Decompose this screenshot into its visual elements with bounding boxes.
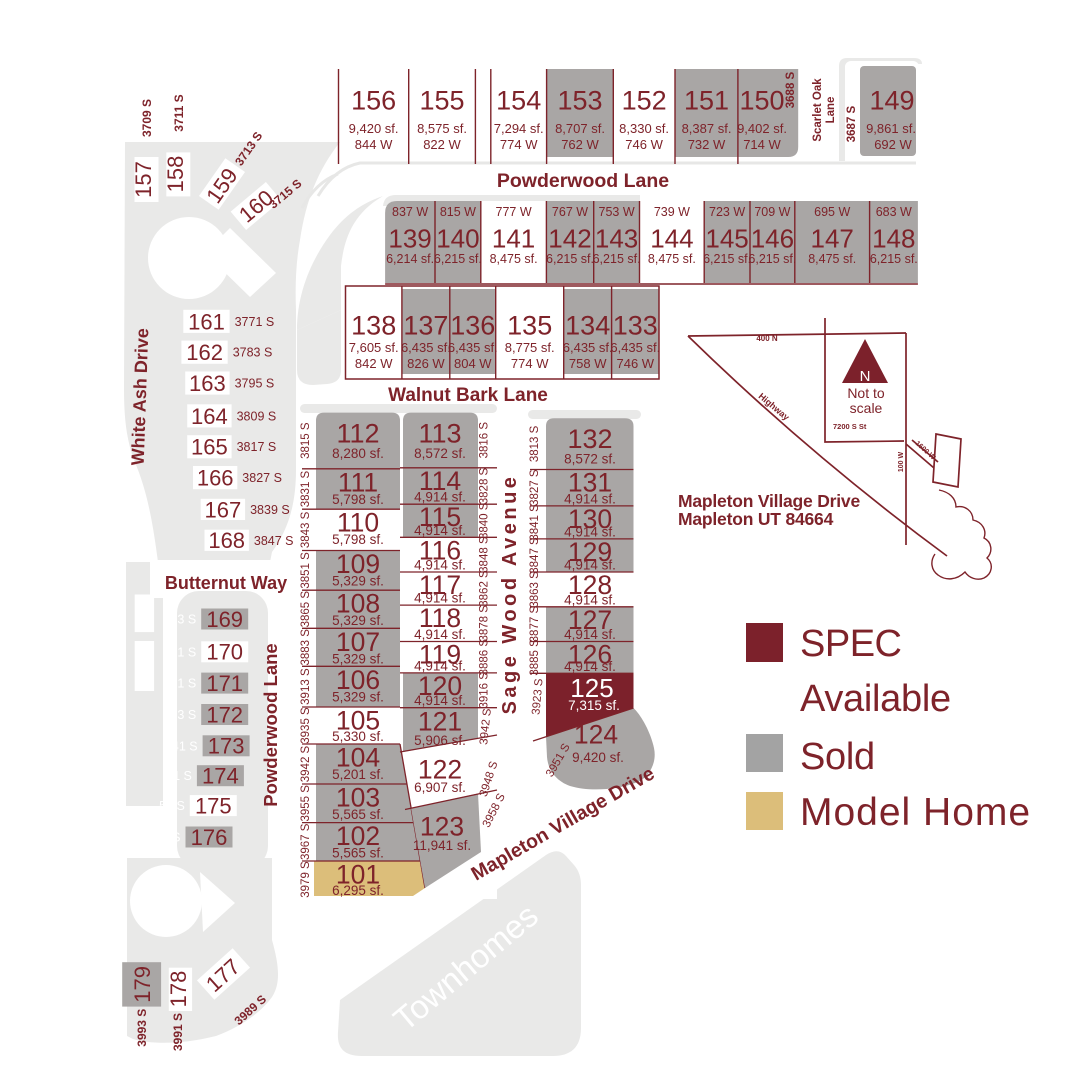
svg-text:3841 S: 3841 S <box>529 504 541 541</box>
svg-text:5,565 sf.: 5,565 sf. <box>332 846 384 861</box>
svg-text:3916 S: 3916 S <box>479 672 491 709</box>
svg-text:SPEC: SPEC <box>800 623 901 665</box>
svg-text:136: 136 <box>450 311 495 341</box>
svg-text:151: 151 <box>684 86 729 116</box>
svg-text:692 W: 692 W <box>874 137 912 152</box>
svg-text:N: N <box>860 368 871 385</box>
svg-text:8,475 sf.: 8,475 sf. <box>490 252 538 266</box>
svg-text:3878 S: 3878 S <box>479 605 491 642</box>
svg-text:746 W: 746 W <box>625 137 663 152</box>
svg-text:139: 139 <box>388 223 431 253</box>
svg-text:11,941 sf.: 11,941 sf. <box>413 838 471 853</box>
svg-text:3795 S: 3795 S <box>235 377 275 391</box>
svg-text:5,798 sf.: 5,798 sf. <box>332 532 384 547</box>
svg-text:141: 141 <box>492 223 535 253</box>
svg-text:176: 176 <box>191 825 228 850</box>
svg-text:3839 S: 3839 S <box>250 503 290 517</box>
svg-text:746 W: 746 W <box>617 356 655 371</box>
svg-text:6,215 sf.: 6,215 sf. <box>593 252 641 266</box>
svg-text:815 W: 815 W <box>440 205 476 219</box>
svg-text:6,215 sf.: 6,215 sf. <box>434 252 482 266</box>
svg-text:5,565 sf.: 5,565 sf. <box>332 807 384 822</box>
svg-text:170: 170 <box>206 640 243 665</box>
svg-text:8,475 sf.: 8,475 sf. <box>648 252 696 266</box>
svg-text:7,294 sf.: 7,294 sf. <box>494 121 544 136</box>
svg-text:6,215 sf.: 6,215 sf. <box>546 252 594 266</box>
svg-text:41 S: 41 S <box>172 739 198 753</box>
svg-text:3843 S: 3843 S <box>300 511 312 548</box>
svg-text:1 S: 1 S <box>177 645 196 659</box>
svg-text:8,330 sf.: 8,330 sf. <box>619 121 669 136</box>
svg-text:3828 S: 3828 S <box>479 467 491 504</box>
svg-text:3813 S: 3813 S <box>529 425 541 462</box>
svg-text:1600 W: 1600 W <box>914 440 937 462</box>
svg-text:3993 S: 3993 S <box>135 1009 149 1047</box>
svg-text:155: 155 <box>419 86 464 116</box>
svg-text:162: 162 <box>186 340 223 365</box>
svg-text:51 S: 51 S <box>166 769 192 783</box>
svg-text:Walnut Bark Lane: Walnut Bark Lane <box>388 385 548 406</box>
svg-text:7,315 sf.: 7,315 sf. <box>568 698 620 713</box>
svg-text:3815 S: 3815 S <box>300 422 312 459</box>
svg-text:3863 S: 3863 S <box>529 571 541 608</box>
svg-text:173: 173 <box>208 734 245 759</box>
svg-text:9,420 sf.: 9,420 sf. <box>349 121 399 136</box>
svg-text:Model Home: Model Home <box>800 791 1031 834</box>
svg-text:148: 148 <box>872 223 915 253</box>
svg-text:Mapleton UT 84664: Mapleton UT 84664 <box>678 509 834 529</box>
svg-text:5,329 sf.: 5,329 sf. <box>332 689 384 704</box>
svg-text:157: 157 <box>131 161 156 198</box>
svg-text:3688 S: 3688 S <box>785 71 797 108</box>
svg-text:3913 S: 3913 S <box>300 668 312 705</box>
svg-text:152: 152 <box>622 86 667 116</box>
svg-text:174: 174 <box>202 764 239 789</box>
svg-text:145: 145 <box>705 223 748 253</box>
svg-text:153: 153 <box>557 86 602 116</box>
svg-text:732 W: 732 W <box>688 137 726 152</box>
svg-text:8,475 sf.: 8,475 sf. <box>808 252 856 266</box>
svg-text:3840 S: 3840 S <box>479 502 491 539</box>
svg-text:6,907 sf.: 6,907 sf. <box>414 780 466 795</box>
svg-text:774 W: 774 W <box>500 137 538 152</box>
svg-text:4,914 sf.: 4,914 sf. <box>564 659 616 674</box>
svg-text:150: 150 <box>739 86 784 116</box>
svg-text:3862 S: 3862 S <box>479 570 491 607</box>
svg-text:167: 167 <box>205 497 242 522</box>
svg-text:822 W: 822 W <box>423 137 461 152</box>
svg-text:8,280 sf.: 8,280 sf. <box>332 446 384 461</box>
svg-text:147: 147 <box>811 223 854 253</box>
svg-text:6,215 sf.: 6,215 sf. <box>870 252 918 266</box>
svg-text:3967 S: 3967 S <box>300 823 312 860</box>
svg-text:3991 S: 3991 S <box>171 1013 185 1051</box>
svg-text:9,402 sf.: 9,402 sf. <box>737 121 787 136</box>
svg-text:762 W: 762 W <box>561 137 599 152</box>
svg-text:73 S: 73 S <box>170 613 196 627</box>
svg-text:3885 S: 3885 S <box>529 639 541 676</box>
svg-text:Available: Available <box>800 678 951 720</box>
svg-text:Powderwood Lane: Powderwood Lane <box>497 170 669 192</box>
svg-text:1 S: 1 S <box>177 677 196 691</box>
svg-text:8,775 sf.: 8,775 sf. <box>505 340 555 355</box>
svg-text:683 W: 683 W <box>876 205 912 219</box>
svg-text:3687 S: 3687 S <box>846 105 858 142</box>
svg-text:3877 S: 3877 S <box>529 606 541 643</box>
svg-text:6,435 sf.: 6,435 sf. <box>610 340 660 355</box>
svg-text:140: 140 <box>436 223 479 253</box>
svg-text:3827 S: 3827 S <box>529 469 541 506</box>
svg-text:753 W: 753 W <box>599 205 635 219</box>
svg-text:121: 121 <box>418 707 462 737</box>
svg-text:Highway: Highway <box>757 391 792 422</box>
svg-text:Sage Wood Avenue: Sage Wood Avenue <box>499 474 521 715</box>
svg-text:165: 165 <box>191 435 228 460</box>
svg-text:124: 124 <box>574 720 618 750</box>
svg-text:3771 S: 3771 S <box>235 315 275 329</box>
svg-text:132: 132 <box>567 424 612 454</box>
svg-text:23 S: 23 S <box>170 708 196 722</box>
svg-text:709 W: 709 W <box>754 205 790 219</box>
svg-text:3827 S: 3827 S <box>242 471 282 485</box>
svg-text:3851 S: 3851 S <box>300 552 312 589</box>
svg-text:5,906 sf.: 5,906 sf. <box>414 733 466 748</box>
svg-text:144: 144 <box>650 223 693 253</box>
svg-text:112: 112 <box>336 418 379 448</box>
svg-text:156: 156 <box>351 86 396 116</box>
svg-text:134: 134 <box>565 311 610 341</box>
svg-text:3886 S: 3886 S <box>479 639 491 676</box>
svg-text:3711 S: 3711 S <box>172 94 186 131</box>
svg-text:6,214 sf.: 6,214 sf. <box>386 252 434 266</box>
svg-text:5,201 sf.: 5,201 sf. <box>332 767 384 782</box>
svg-text:6,435 sf.: 6,435 sf. <box>448 340 498 355</box>
svg-text:3783 S: 3783 S <box>233 346 273 360</box>
svg-text:3883 S: 3883 S <box>300 629 312 666</box>
svg-text:179: 179 <box>130 966 155 1003</box>
svg-text:142: 142 <box>548 223 591 253</box>
svg-text:8,572 sf.: 8,572 sf. <box>414 446 466 461</box>
svg-text:123: 123 <box>420 812 464 842</box>
svg-text:837 W: 837 W <box>392 205 428 219</box>
svg-text:3955 S: 3955 S <box>300 785 312 822</box>
svg-text:Powderwood Lane: Powderwood Lane <box>260 643 281 806</box>
svg-text:Scarlet Oak: Scarlet Oak <box>812 78 824 142</box>
svg-text:166: 166 <box>197 466 234 491</box>
svg-text:135: 135 <box>507 311 552 341</box>
svg-text:826 W: 826 W <box>407 356 445 371</box>
svg-text:804 W: 804 W <box>454 356 492 371</box>
svg-text:137: 137 <box>403 311 448 341</box>
svg-text:57 S: 57 S <box>159 799 185 813</box>
svg-text:154: 154 <box>496 86 541 116</box>
svg-text:168: 168 <box>208 528 245 553</box>
svg-text:6,435 sf.: 6,435 sf. <box>563 340 613 355</box>
svg-text:161: 161 <box>188 309 225 334</box>
svg-text:695 W: 695 W <box>814 205 850 219</box>
svg-text:6,295 sf.: 6,295 sf. <box>332 883 384 898</box>
svg-text:8,572 sf.: 8,572 sf. <box>564 452 616 467</box>
svg-text:5,798 sf.: 5,798 sf. <box>332 492 384 507</box>
svg-text:3865 S: 3865 S <box>300 591 312 628</box>
svg-text:3979 S: 3979 S <box>300 861 312 898</box>
svg-text:3942 S: 3942 S <box>300 745 312 782</box>
svg-text:169: 169 <box>206 607 243 632</box>
svg-text:8,707 sf.: 8,707 sf. <box>555 121 605 136</box>
svg-text:3847 S: 3847 S <box>254 534 294 548</box>
svg-text:739 W: 739 W <box>654 205 690 219</box>
svg-text:3816 S: 3816 S <box>479 422 491 459</box>
svg-text:714 W: 714 W <box>743 137 781 152</box>
svg-text:6,435 sf.: 6,435 sf. <box>401 340 451 355</box>
svg-text:774 W: 774 W <box>511 356 549 371</box>
svg-text:3831 S: 3831 S <box>300 470 312 507</box>
svg-text:7200 S St: 7200 S St <box>833 422 867 431</box>
svg-text:69 S: 69 S <box>155 831 181 845</box>
svg-text:143: 143 <box>595 223 638 253</box>
svg-text:158: 158 <box>163 156 188 193</box>
svg-text:767 W: 767 W <box>552 205 588 219</box>
svg-text:133: 133 <box>613 311 658 341</box>
svg-text:3923 S: 3923 S <box>530 678 545 716</box>
svg-text:178: 178 <box>166 971 191 1008</box>
svg-text:758 W: 758 W <box>569 356 607 371</box>
svg-text:3817 S: 3817 S <box>237 440 277 454</box>
svg-text:3809 S: 3809 S <box>237 409 277 423</box>
svg-text:3847 S: 3847 S <box>529 537 541 574</box>
svg-text:9,861 sf.: 9,861 sf. <box>866 121 916 136</box>
svg-text:146: 146 <box>751 223 794 253</box>
svg-text:9,420 sf.: 9,420 sf. <box>572 750 624 765</box>
svg-text:163: 163 <box>189 371 226 396</box>
svg-text:100 W: 100 W <box>898 451 905 472</box>
svg-text:400 N: 400 N <box>756 334 778 343</box>
svg-text:113: 113 <box>418 418 461 448</box>
svg-text:172: 172 <box>206 702 243 727</box>
svg-text:149: 149 <box>869 86 914 116</box>
svg-text:175: 175 <box>195 794 232 819</box>
svg-text:Not to: Not to <box>847 385 885 401</box>
svg-text:844 W: 844 W <box>355 137 393 152</box>
svg-text:8,387 sf.: 8,387 sf. <box>682 121 732 136</box>
svg-text:5,329 sf.: 5,329 sf. <box>332 574 384 589</box>
svg-text:138: 138 <box>351 311 396 341</box>
svg-text:842 W: 842 W <box>355 356 393 371</box>
svg-text:171: 171 <box>206 671 243 696</box>
svg-text:Lane: Lane <box>825 97 837 124</box>
svg-text:Sold: Sold <box>800 736 875 778</box>
svg-text:scale: scale <box>850 400 883 416</box>
svg-text:8,575 sf.: 8,575 sf. <box>417 121 467 136</box>
svg-text:7,605 sf.: 7,605 sf. <box>349 340 399 355</box>
svg-text:3848 S: 3848 S <box>479 536 491 573</box>
svg-text:Butternut Way: Butternut Way <box>165 573 287 593</box>
svg-text:3709 S: 3709 S <box>140 99 154 137</box>
svg-text:Mapleton Village Drive: Mapleton Village Drive <box>678 491 860 511</box>
svg-text:723 W: 723 W <box>709 205 745 219</box>
svg-text:164: 164 <box>191 404 228 429</box>
svg-text:6,215 sf.: 6,215 sf. <box>703 252 751 266</box>
svg-text:3935 S: 3935 S <box>300 707 312 744</box>
svg-text:777 W: 777 W <box>496 205 532 219</box>
svg-text:6,215 sf.: 6,215 sf. <box>748 252 796 266</box>
